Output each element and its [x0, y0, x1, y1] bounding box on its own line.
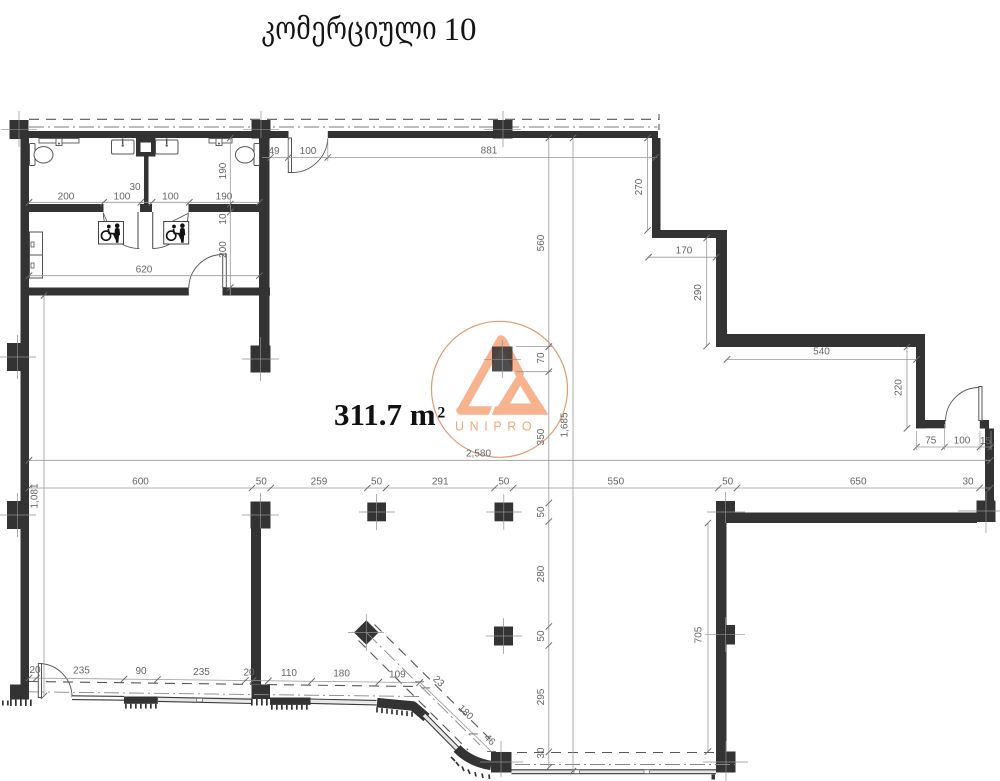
svg-text:100: 100 [162, 192, 179, 203]
svg-text:20: 20 [29, 665, 41, 676]
svg-text:50: 50 [256, 477, 268, 488]
svg-text:291: 291 [432, 477, 449, 488]
svg-text:235: 235 [73, 666, 90, 677]
svg-text:15: 15 [980, 436, 992, 447]
svg-text:2,580: 2,580 [466, 449, 491, 460]
svg-text:70: 70 [536, 352, 547, 364]
svg-text:560: 560 [536, 234, 547, 251]
svg-text:290: 290 [693, 284, 704, 301]
svg-text:30: 30 [536, 747, 547, 759]
svg-text:50: 50 [498, 477, 510, 488]
svg-text:311.7 m: 311.7 m [334, 397, 436, 432]
svg-text:280: 280 [536, 565, 547, 582]
svg-text:295: 295 [536, 688, 547, 705]
svg-text:109: 109 [389, 669, 406, 680]
svg-text:90: 90 [135, 666, 147, 677]
svg-text:190: 190 [218, 162, 229, 179]
svg-text:620: 620 [136, 265, 153, 276]
svg-text:600: 600 [132, 477, 149, 488]
svg-text:10: 10 [444, 12, 477, 48]
svg-text:180: 180 [333, 669, 350, 680]
svg-text:30: 30 [962, 477, 974, 488]
svg-text:100: 100 [114, 192, 131, 203]
svg-text:75: 75 [925, 436, 937, 447]
svg-text:100: 100 [300, 146, 317, 157]
svg-text:50: 50 [536, 630, 547, 642]
svg-text:259: 259 [311, 477, 328, 488]
svg-text:705: 705 [694, 626, 705, 643]
svg-text:1,685: 1,685 [560, 412, 571, 437]
svg-text:881: 881 [481, 146, 498, 157]
svg-text:235: 235 [193, 667, 210, 678]
svg-text:50: 50 [722, 477, 734, 488]
svg-text:1,081: 1,081 [30, 483, 41, 508]
svg-text:100: 100 [954, 436, 971, 447]
svg-text:49: 49 [268, 146, 280, 157]
svg-text:200: 200 [58, 192, 75, 203]
svg-text:350: 350 [536, 428, 547, 445]
svg-text:170: 170 [676, 246, 693, 257]
svg-text:50: 50 [371, 477, 383, 488]
svg-text:30: 30 [129, 182, 141, 193]
svg-text:220: 220 [894, 379, 905, 396]
svg-text:650: 650 [850, 477, 867, 488]
svg-text:2: 2 [438, 405, 446, 422]
svg-text:200: 200 [218, 241, 229, 258]
svg-text:270: 270 [634, 178, 645, 195]
svg-text:50: 50 [536, 506, 547, 518]
svg-text:UNIPRO: UNIPRO [455, 420, 537, 434]
svg-text:10: 10 [218, 213, 229, 225]
svg-text:540: 540 [813, 347, 830, 358]
svg-text:550: 550 [607, 477, 624, 488]
svg-text:20: 20 [243, 667, 255, 678]
svg-text:110: 110 [281, 668, 297, 679]
